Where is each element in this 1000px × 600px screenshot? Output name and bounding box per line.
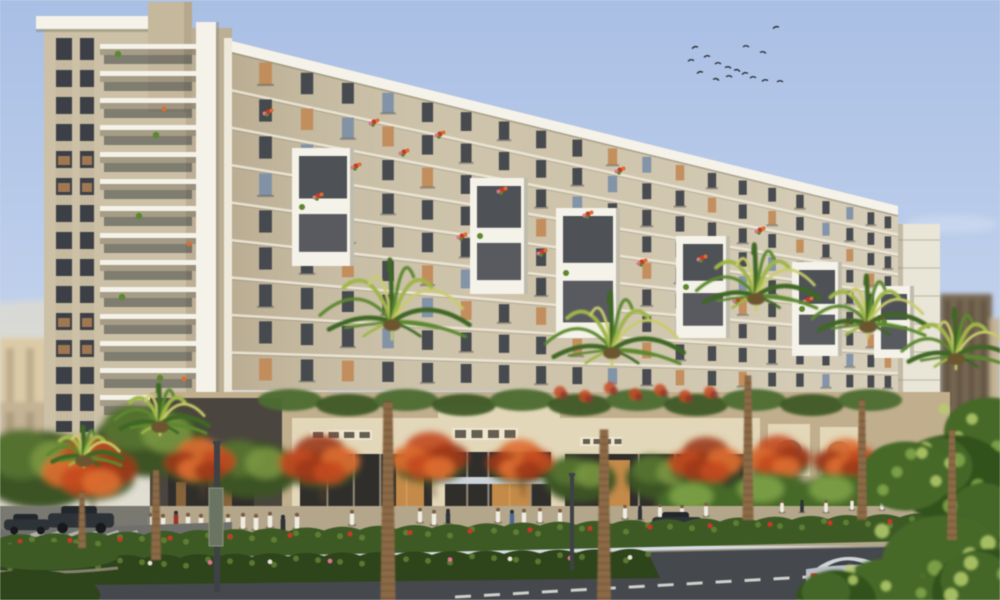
window (708, 198, 716, 213)
window (301, 359, 313, 381)
window (796, 373, 803, 386)
window (259, 247, 272, 269)
window (536, 189, 546, 207)
hedge-flower (268, 559, 273, 564)
window (461, 301, 472, 320)
tower-roof-slab (36, 16, 156, 29)
window (676, 191, 685, 206)
hedge-flower (287, 533, 292, 538)
window (301, 324, 313, 346)
window (739, 181, 747, 195)
window (822, 223, 829, 236)
window (708, 173, 716, 188)
window (259, 62, 272, 84)
hedge-flower (827, 520, 832, 525)
window (422, 233, 433, 253)
window (461, 207, 472, 226)
window (259, 210, 272, 232)
hedge-flower (448, 557, 453, 562)
balcony-slab (100, 368, 196, 373)
window (461, 270, 472, 289)
window (536, 160, 546, 178)
window (642, 157, 651, 173)
window (382, 160, 394, 180)
window (868, 253, 875, 265)
balcony-plant (115, 51, 121, 57)
window (642, 289, 651, 305)
hedge-flower (328, 559, 333, 564)
window (499, 304, 509, 322)
balcony-slab (100, 71, 196, 76)
window (259, 136, 272, 158)
window (342, 361, 354, 382)
window (499, 121, 509, 139)
window (768, 188, 776, 202)
window (642, 263, 651, 279)
window (259, 321, 272, 343)
window (382, 93, 394, 113)
balcony-box (470, 178, 528, 294)
hedge-flower (647, 524, 652, 529)
window (572, 140, 582, 157)
window (739, 228, 747, 242)
window-strip (56, 38, 72, 432)
hedge-flower (628, 555, 633, 560)
corner-pier (224, 38, 232, 392)
hedge-flower (467, 529, 472, 534)
window (822, 374, 829, 387)
window (499, 365, 509, 383)
window (499, 152, 509, 170)
window (382, 227, 394, 247)
hedge-flower (887, 519, 892, 524)
window (642, 210, 651, 226)
balcony-plant (119, 294, 125, 300)
balcony-slab (100, 206, 196, 211)
window (572, 367, 582, 384)
window (382, 194, 394, 214)
balcony-slab (100, 152, 196, 157)
window (422, 363, 433, 383)
window (739, 204, 747, 218)
window (301, 109, 313, 131)
window (461, 175, 472, 194)
hedge-flower (767, 522, 772, 527)
balcony-box (292, 148, 354, 266)
window (822, 201, 829, 214)
balcony-slab (100, 98, 196, 103)
window (868, 212, 875, 224)
balcony-slab (100, 233, 196, 238)
hedge-flower (707, 523, 712, 528)
window (422, 135, 433, 155)
window (422, 330, 433, 350)
window (259, 173, 272, 195)
hedge-flower (407, 530, 412, 535)
balcony-slab (100, 341, 196, 346)
window (885, 256, 892, 268)
window (846, 207, 853, 220)
window (796, 217, 803, 230)
window (868, 233, 875, 245)
hedge-flower (347, 531, 352, 536)
window (708, 346, 716, 361)
window (846, 228, 853, 241)
balcony-slab (100, 179, 196, 184)
balcony-plant (153, 132, 159, 138)
hedge-flower (208, 560, 213, 565)
balcony-slab (100, 125, 196, 130)
balcony-plant (157, 375, 163, 381)
left-tower (36, 2, 232, 440)
window (461, 364, 472, 383)
architectural-rendering (0, 0, 1000, 600)
window (642, 183, 651, 199)
window (642, 236, 651, 252)
window (572, 168, 582, 185)
balcony-plant (136, 213, 142, 219)
window (846, 270, 853, 283)
window (608, 148, 617, 164)
window (885, 236, 892, 248)
window (536, 307, 546, 325)
window (422, 103, 433, 123)
street-sign-plate (209, 488, 223, 546)
window (846, 249, 853, 262)
window (642, 369, 651, 385)
window (846, 375, 853, 388)
window (676, 370, 685, 385)
window (768, 373, 776, 387)
hedge-flower (527, 527, 532, 532)
window (301, 288, 313, 310)
window (536, 219, 546, 237)
window (422, 168, 433, 188)
hedge-flower (67, 538, 72, 543)
hedge-flower (148, 561, 153, 566)
balcony-slab (100, 314, 196, 319)
hedge-flower (167, 535, 172, 540)
window (885, 376, 892, 388)
window (676, 216, 685, 231)
tower-pier (196, 22, 216, 440)
window (885, 216, 892, 228)
rendering-canvas (0, 0, 1000, 600)
window (342, 118, 354, 139)
window (768, 349, 776, 363)
hedge-flower (508, 556, 513, 561)
window (708, 371, 716, 386)
window (259, 358, 272, 380)
window (768, 326, 776, 340)
hedge-flower (117, 537, 122, 542)
window (868, 375, 875, 387)
window (739, 324, 747, 338)
window (868, 355, 875, 367)
window (796, 239, 803, 252)
hedge-flower (587, 526, 592, 531)
window (846, 354, 853, 367)
window (382, 362, 394, 382)
window (499, 335, 509, 353)
window (301, 73, 313, 95)
street-pole (570, 476, 574, 570)
window (461, 112, 472, 131)
window (382, 126, 394, 146)
window (768, 211, 776, 225)
window (796, 195, 803, 208)
window (342, 326, 354, 347)
window (608, 176, 617, 192)
window (461, 238, 472, 257)
window (708, 222, 716, 237)
window (536, 131, 546, 149)
window (461, 144, 472, 163)
balcony-slab (100, 260, 196, 265)
window (822, 244, 829, 257)
window (536, 278, 546, 296)
window (768, 234, 776, 248)
window-strip (80, 38, 94, 432)
window (536, 337, 546, 355)
balcony-slab (100, 44, 196, 49)
window (536, 366, 546, 384)
window (342, 83, 354, 104)
window (676, 165, 685, 180)
hedge-flower (227, 534, 232, 539)
balcony-slab (100, 287, 196, 292)
window (259, 284, 272, 306)
window (739, 348, 747, 362)
window (422, 200, 433, 220)
